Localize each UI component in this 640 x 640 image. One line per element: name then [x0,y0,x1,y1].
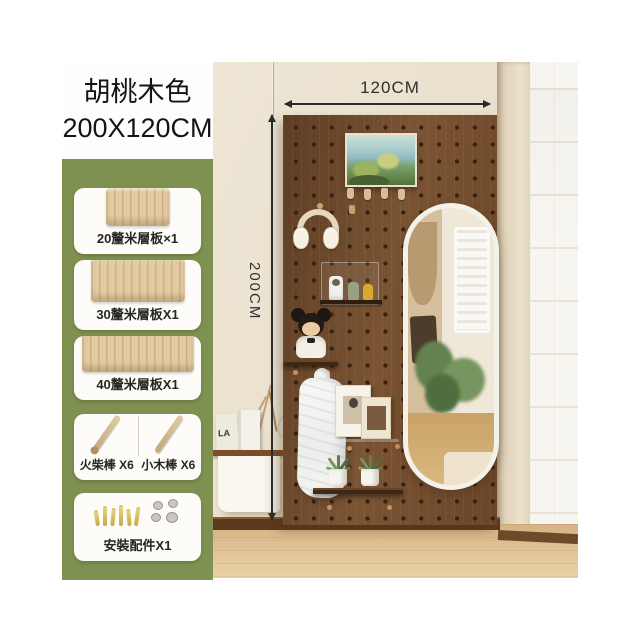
wood-board-40cm [82,336,194,372]
plant-shelf [313,450,403,494]
screw [133,509,139,526]
washer [153,501,163,510]
arrowhead-left-icon [284,100,292,108]
mickey-bow [307,338,315,343]
wood-peg [347,188,354,199]
wood-peg [349,205,355,214]
match-stick-label: 火柴棒 X6 [80,456,134,473]
headphones [293,207,347,257]
bag-text: LA [218,428,230,438]
wood-stick-label: 小木棒 X6 [141,456,195,473]
brass-peg [395,444,400,449]
wood-board-20cm [106,188,170,226]
height-dimension-arrow [271,115,273,520]
component-card-sticks: 火柴棒 X6 小木棒 X6 [74,414,201,480]
width-dimension-label: 120CM [347,78,433,98]
arrowhead-down-icon [268,513,276,521]
side-cabinet: LA [212,384,290,522]
brass-peg [327,505,332,510]
washer-discs [149,499,183,527]
art-print [345,133,417,187]
board-20-image-zone [74,188,201,226]
art-foliage [377,153,399,169]
display-book-small [361,397,391,439]
acrylic-shelf [320,300,382,304]
washer [168,499,178,508]
display-book [238,410,260,454]
headphone-earcup [323,227,339,249]
component-card-board-20: 20釐米層板×1 [74,188,201,254]
wood-board-30cm [91,260,185,302]
potted-plant [357,450,383,486]
screw [119,507,123,526]
plant-pot [361,469,379,486]
capsule-mirror [403,203,499,490]
divider [138,416,139,456]
paper-bag: LA [215,414,238,455]
height-dimension-label: 200CM [246,262,263,352]
screw [126,511,131,526]
board-30-image-zone [74,260,201,302]
acrylic-shelf [331,439,399,442]
board-40-image-zone [74,336,201,372]
mickey-face [302,322,320,336]
plant-pot [329,469,347,486]
reflection-arch [408,222,437,305]
potted-plant [325,450,351,486]
wood-peg [381,188,388,199]
dried-branch [268,390,277,432]
brass-peg [387,505,392,510]
mickey-figurine [288,308,334,360]
component-label: 30釐米層板X1 [96,302,178,330]
washer [166,512,178,523]
art-foliage [349,175,389,187]
arrowhead-right-icon [483,100,491,108]
screw [110,510,115,526]
wall-pillar [497,62,530,545]
wood-stick [154,414,184,453]
product-listing-image: LA [0,0,640,640]
wood-peg [398,189,405,200]
white-tile-wall [530,62,578,578]
components-sidebar: 20釐米層板×1 30釐米層板X1 40釐米層板X1 火柴棒 X6 小木棒 X6 [62,159,213,580]
small-wood-shelf [284,360,338,366]
arrowhead-up-icon [268,114,276,122]
figurine-visor [332,279,340,286]
screws-cluster [93,498,141,528]
reflection-window [454,227,490,332]
component-label: 40釐米層板X1 [96,372,178,400]
component-card-board-30: 30釐米層板X1 [74,260,201,330]
book-cover-portrait [349,398,358,408]
yellow-figurine [363,284,373,300]
stick-labels: 火柴棒 X6 小木棒 X6 [74,456,201,480]
sticks-image-zone [74,414,201,456]
headphone-earcup [293,227,309,249]
wood-peg [364,189,371,200]
screw [94,512,100,526]
reflection-plant [425,374,459,413]
screw [103,508,107,526]
book-display-shelf [335,385,397,443]
component-label: 安裝配件X1 [104,533,172,561]
product-title: 胡桃木色 200X120CM [62,62,213,159]
wall-corner-line [272,62,274,116]
width-dimension-arrow [285,103,490,105]
green-figurine [348,282,359,300]
washer [151,513,161,522]
astronaut-figurine [329,276,343,300]
hardware-image-zone [74,493,201,533]
component-card-hardware: 安裝配件X1 [74,493,201,561]
component-card-board-40: 40釐米層板X1 [74,336,201,400]
component-label: 20釐米層板×1 [97,226,178,254]
reflection-rug [444,452,494,485]
color-name: 胡桃木色 [84,75,192,110]
product-size: 200X120CM [62,111,212,146]
book-cover-photo [367,406,386,430]
wood-shelf [313,488,403,494]
match-stick [91,414,121,453]
figurine-display-shelf [321,262,379,305]
